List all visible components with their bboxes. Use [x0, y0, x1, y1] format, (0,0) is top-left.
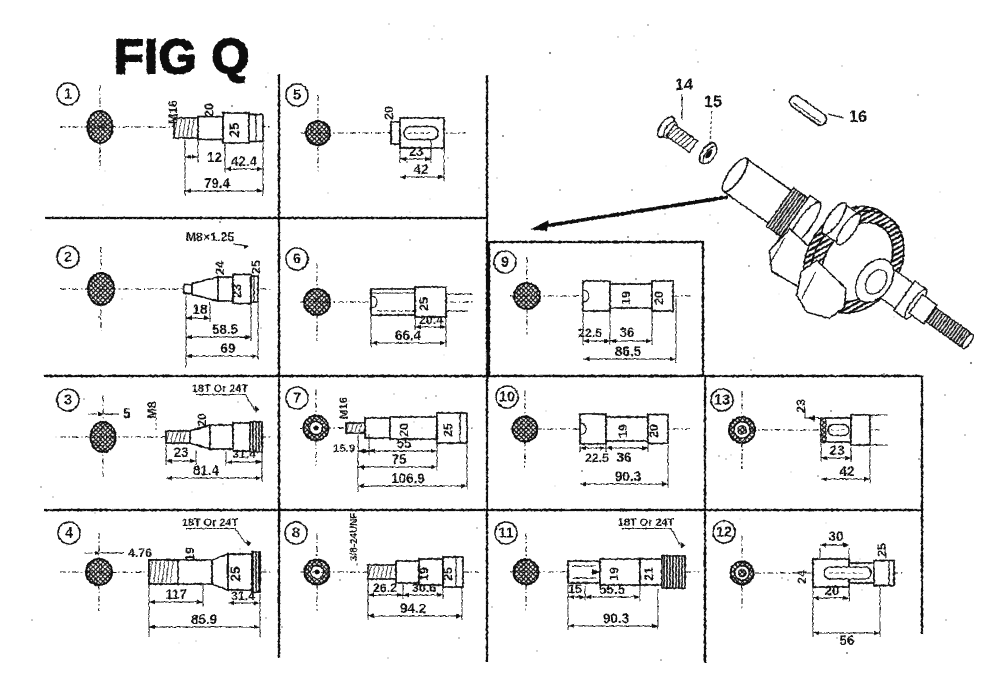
- svg-text:5: 5: [123, 406, 131, 421]
- svg-text:M8×1.25: M8×1.25: [186, 230, 235, 244]
- svg-text:58.5: 58.5: [212, 322, 239, 337]
- svg-text:42: 42: [840, 464, 855, 479]
- svg-text:23: 23: [230, 284, 244, 298]
- svg-text:6: 6: [293, 252, 301, 268]
- svg-text:24: 24: [213, 261, 227, 275]
- svg-text:8: 8: [292, 526, 300, 542]
- svg-text:9: 9: [501, 255, 509, 271]
- svg-text:20.4: 20.4: [419, 313, 443, 327]
- svg-text:20: 20: [382, 106, 396, 120]
- svg-text:15: 15: [568, 582, 582, 596]
- svg-text:25: 25: [228, 566, 243, 581]
- svg-text:20: 20: [397, 423, 411, 437]
- svg-text:31.4: 31.4: [232, 447, 256, 461]
- svg-text:85.9: 85.9: [191, 612, 217, 627]
- svg-text:5: 5: [293, 88, 301, 104]
- svg-text:36: 36: [617, 450, 632, 465]
- svg-text:24: 24: [795, 570, 809, 584]
- svg-text:19: 19: [417, 567, 431, 581]
- svg-text:14: 14: [675, 76, 694, 94]
- svg-text:56: 56: [840, 633, 855, 648]
- svg-text:10: 10: [499, 390, 515, 406]
- svg-text:117: 117: [165, 587, 187, 602]
- svg-text:18T Or 24T: 18T Or 24T: [192, 383, 249, 395]
- svg-text:86.5: 86.5: [615, 344, 642, 359]
- svg-text:66.4: 66.4: [395, 328, 422, 343]
- svg-text:23: 23: [174, 445, 189, 460]
- svg-text:69: 69: [221, 341, 236, 356]
- svg-text:FIG Q: FIG Q: [114, 30, 250, 84]
- svg-text:90.3: 90.3: [615, 469, 641, 484]
- svg-text:18: 18: [193, 302, 208, 317]
- svg-text:19: 19: [183, 547, 197, 561]
- svg-text:31.4: 31.4: [231, 589, 255, 603]
- svg-text:55: 55: [397, 436, 412, 451]
- svg-text:25: 25: [441, 567, 455, 581]
- svg-text:15: 15: [704, 93, 722, 111]
- svg-text:106.9: 106.9: [391, 471, 425, 486]
- svg-text:94.2: 94.2: [400, 601, 426, 616]
- svg-text:7: 7: [293, 391, 301, 407]
- svg-text:4: 4: [65, 526, 73, 542]
- svg-text:M8: M8: [145, 401, 159, 418]
- svg-text:90.3: 90.3: [603, 611, 629, 626]
- svg-text:20: 20: [195, 413, 209, 427]
- svg-text:23: 23: [830, 443, 845, 458]
- svg-text:21: 21: [642, 567, 656, 581]
- svg-text:4.76: 4.76: [128, 546, 152, 560]
- svg-text:11: 11: [498, 526, 513, 542]
- svg-text:20: 20: [652, 291, 666, 305]
- svg-text:16: 16: [849, 108, 867, 126]
- svg-text:25: 25: [417, 297, 431, 311]
- svg-text:30: 30: [829, 529, 844, 544]
- svg-text:20: 20: [647, 424, 661, 438]
- svg-text:75: 75: [392, 452, 407, 467]
- svg-text:13: 13: [714, 393, 730, 409]
- svg-text:M16: M16: [166, 100, 180, 124]
- svg-text:30.6: 30.6: [412, 581, 436, 595]
- svg-text:55.5: 55.5: [599, 582, 626, 597]
- svg-text:M16: M16: [338, 397, 350, 419]
- svg-text:26.2: 26.2: [373, 581, 397, 595]
- svg-text:3/8-24UNF: 3/8-24UNF: [349, 513, 360, 561]
- svg-text:15.9: 15.9: [333, 443, 355, 455]
- svg-text:79.4: 79.4: [204, 176, 231, 191]
- svg-text:3: 3: [64, 393, 72, 409]
- svg-text:25: 25: [875, 543, 889, 557]
- svg-text:25: 25: [227, 122, 242, 137]
- svg-text:36: 36: [620, 325, 635, 340]
- svg-text:23: 23: [409, 144, 424, 159]
- svg-text:42.4: 42.4: [231, 154, 258, 169]
- svg-text:12: 12: [207, 150, 222, 165]
- svg-text:42: 42: [414, 162, 429, 177]
- svg-text:20: 20: [202, 103, 216, 117]
- svg-text:2: 2: [64, 250, 72, 266]
- svg-text:25: 25: [441, 423, 455, 437]
- svg-text:19: 19: [619, 291, 633, 305]
- svg-text:23: 23: [794, 399, 808, 413]
- svg-text:20: 20: [825, 583, 840, 598]
- svg-text:22.5: 22.5: [578, 326, 602, 340]
- svg-text:18T Or 24T: 18T Or 24T: [182, 517, 239, 529]
- svg-text:25: 25: [249, 260, 263, 274]
- svg-text:19: 19: [607, 567, 621, 581]
- svg-text:1: 1: [64, 87, 72, 103]
- svg-text:19: 19: [616, 424, 630, 438]
- svg-text:12: 12: [716, 525, 732, 541]
- svg-text:22.5: 22.5: [585, 451, 609, 465]
- svg-text:81.4: 81.4: [193, 463, 220, 478]
- svg-text:18T Or 24T: 18T Or 24T: [618, 517, 675, 529]
